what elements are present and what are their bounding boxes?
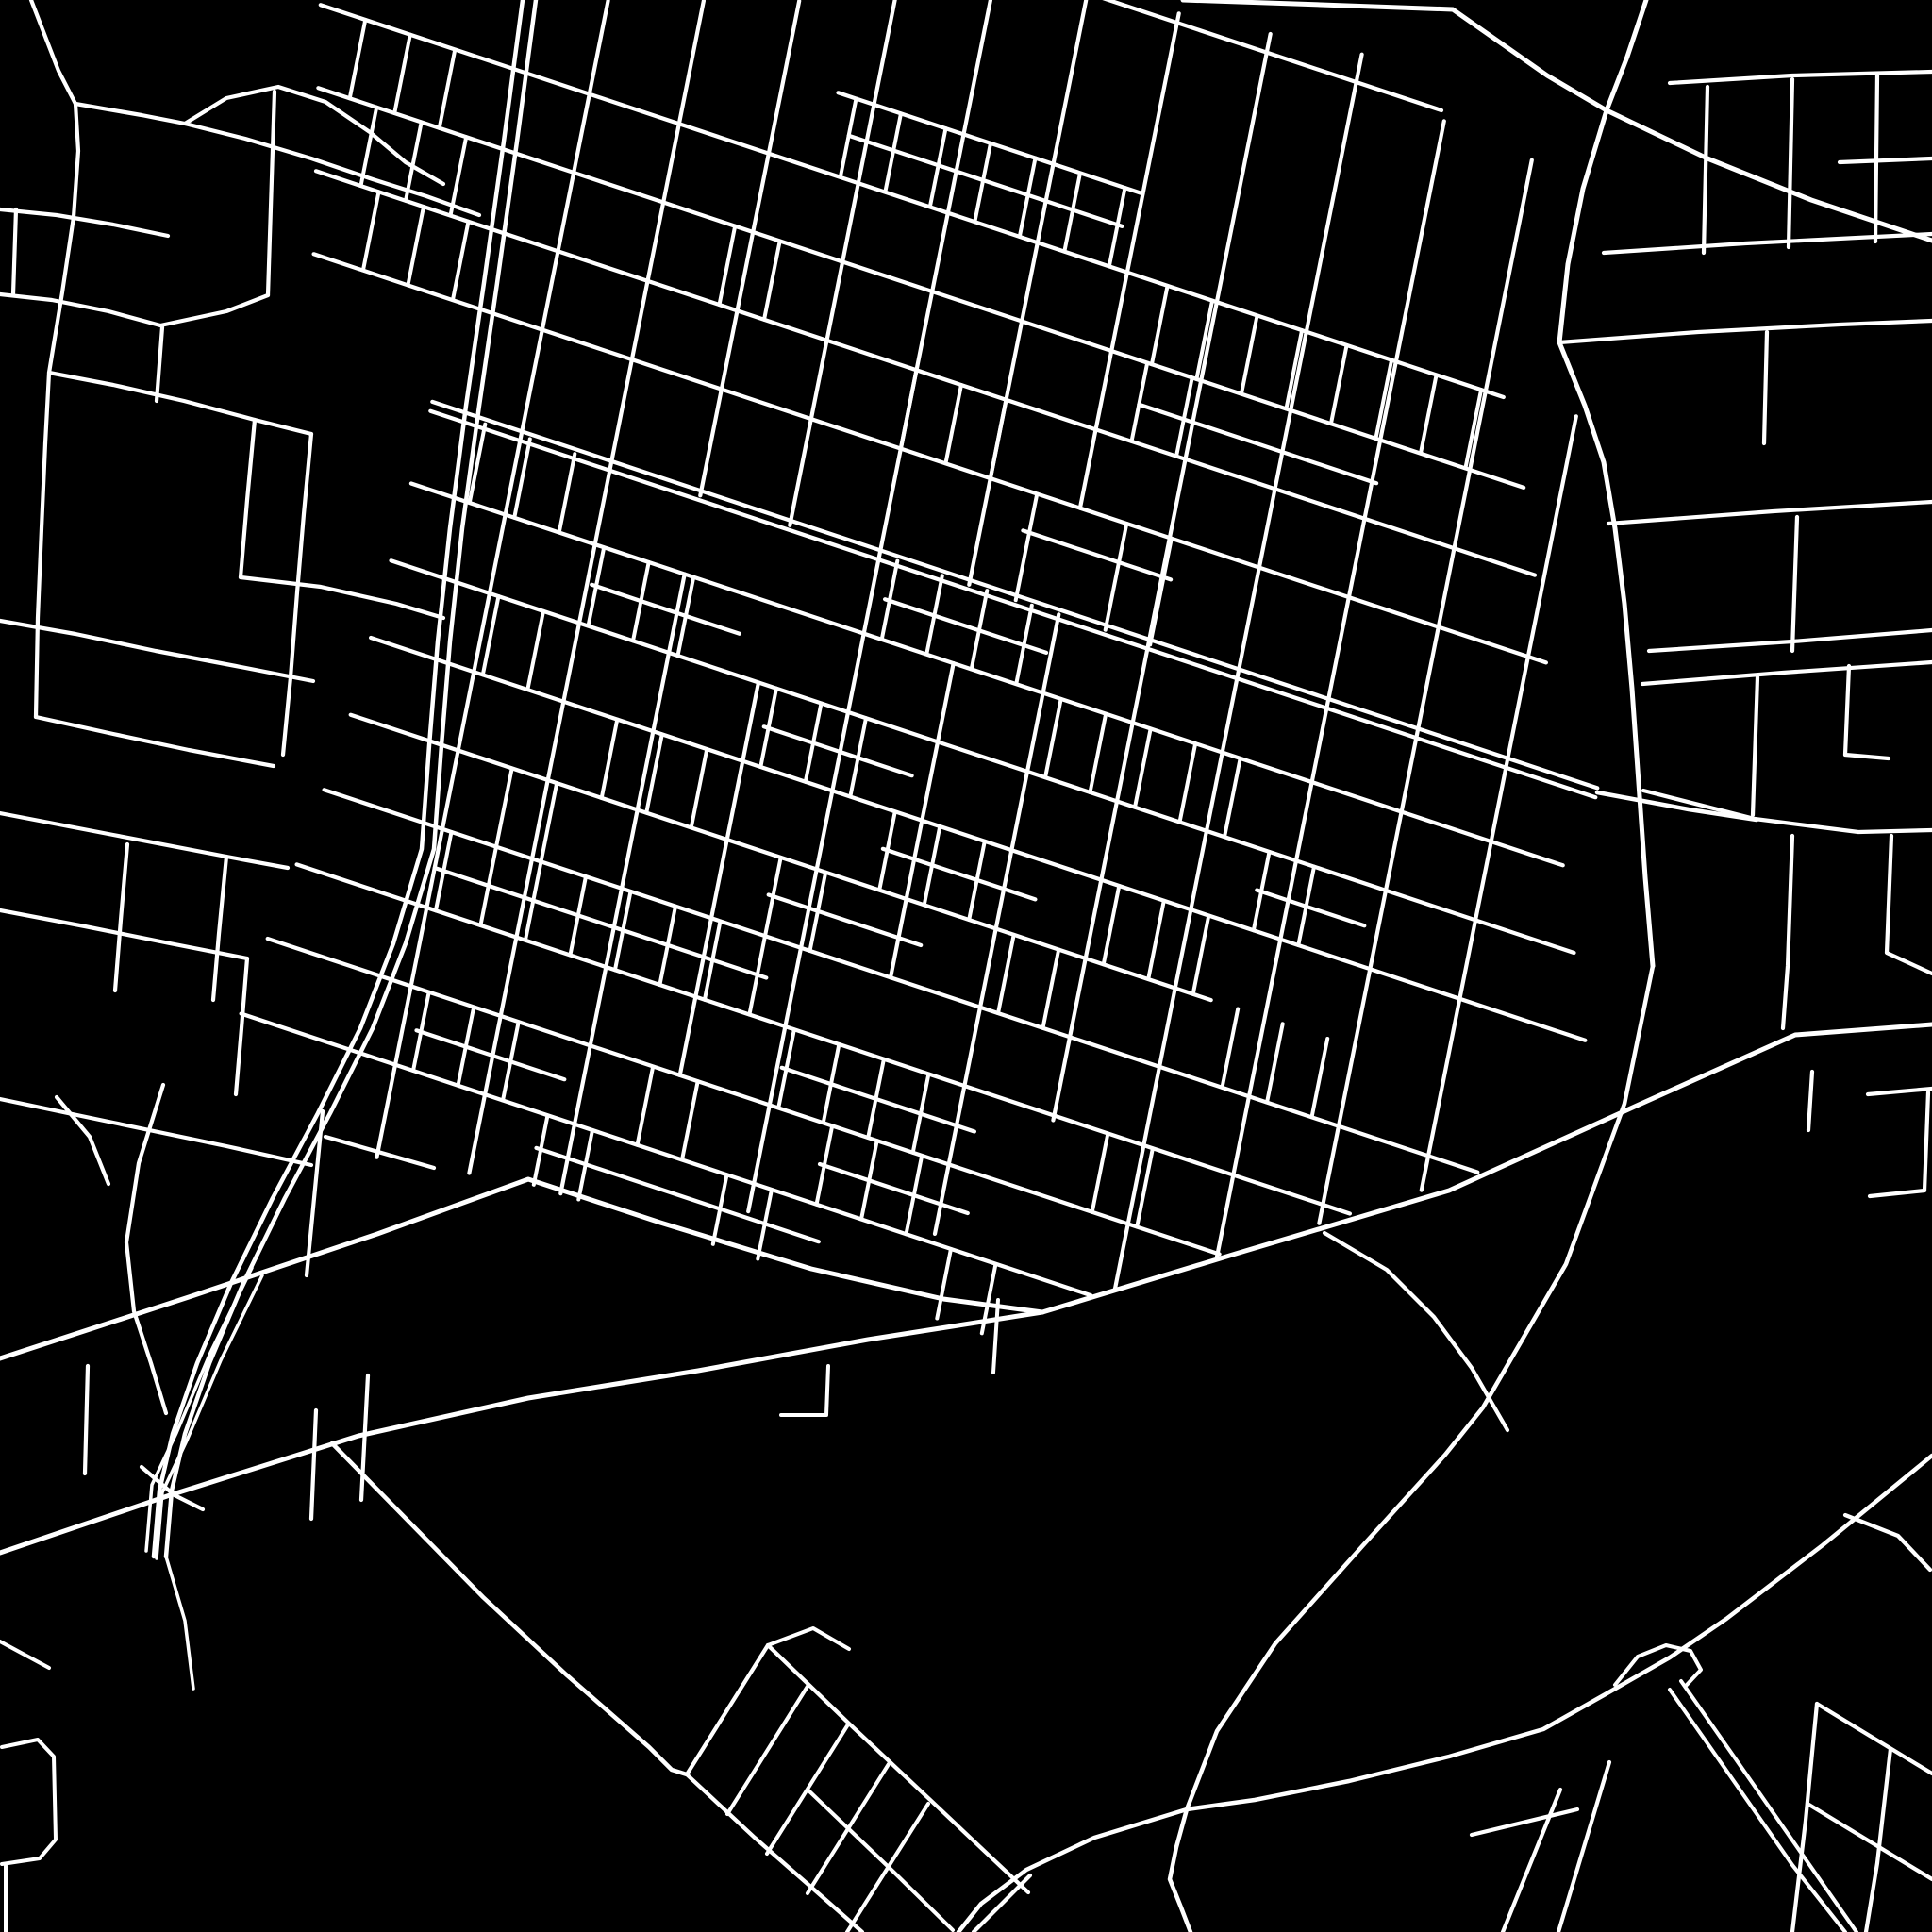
street-map [0,0,1932,1932]
map-viewport [0,0,1932,1932]
tr-v-3 [1875,75,1877,241]
ls-v-9 [85,1366,88,1474]
ls-v-1 [13,209,16,294]
map-background [0,0,1932,1932]
tr-v-4 [1764,332,1767,443]
